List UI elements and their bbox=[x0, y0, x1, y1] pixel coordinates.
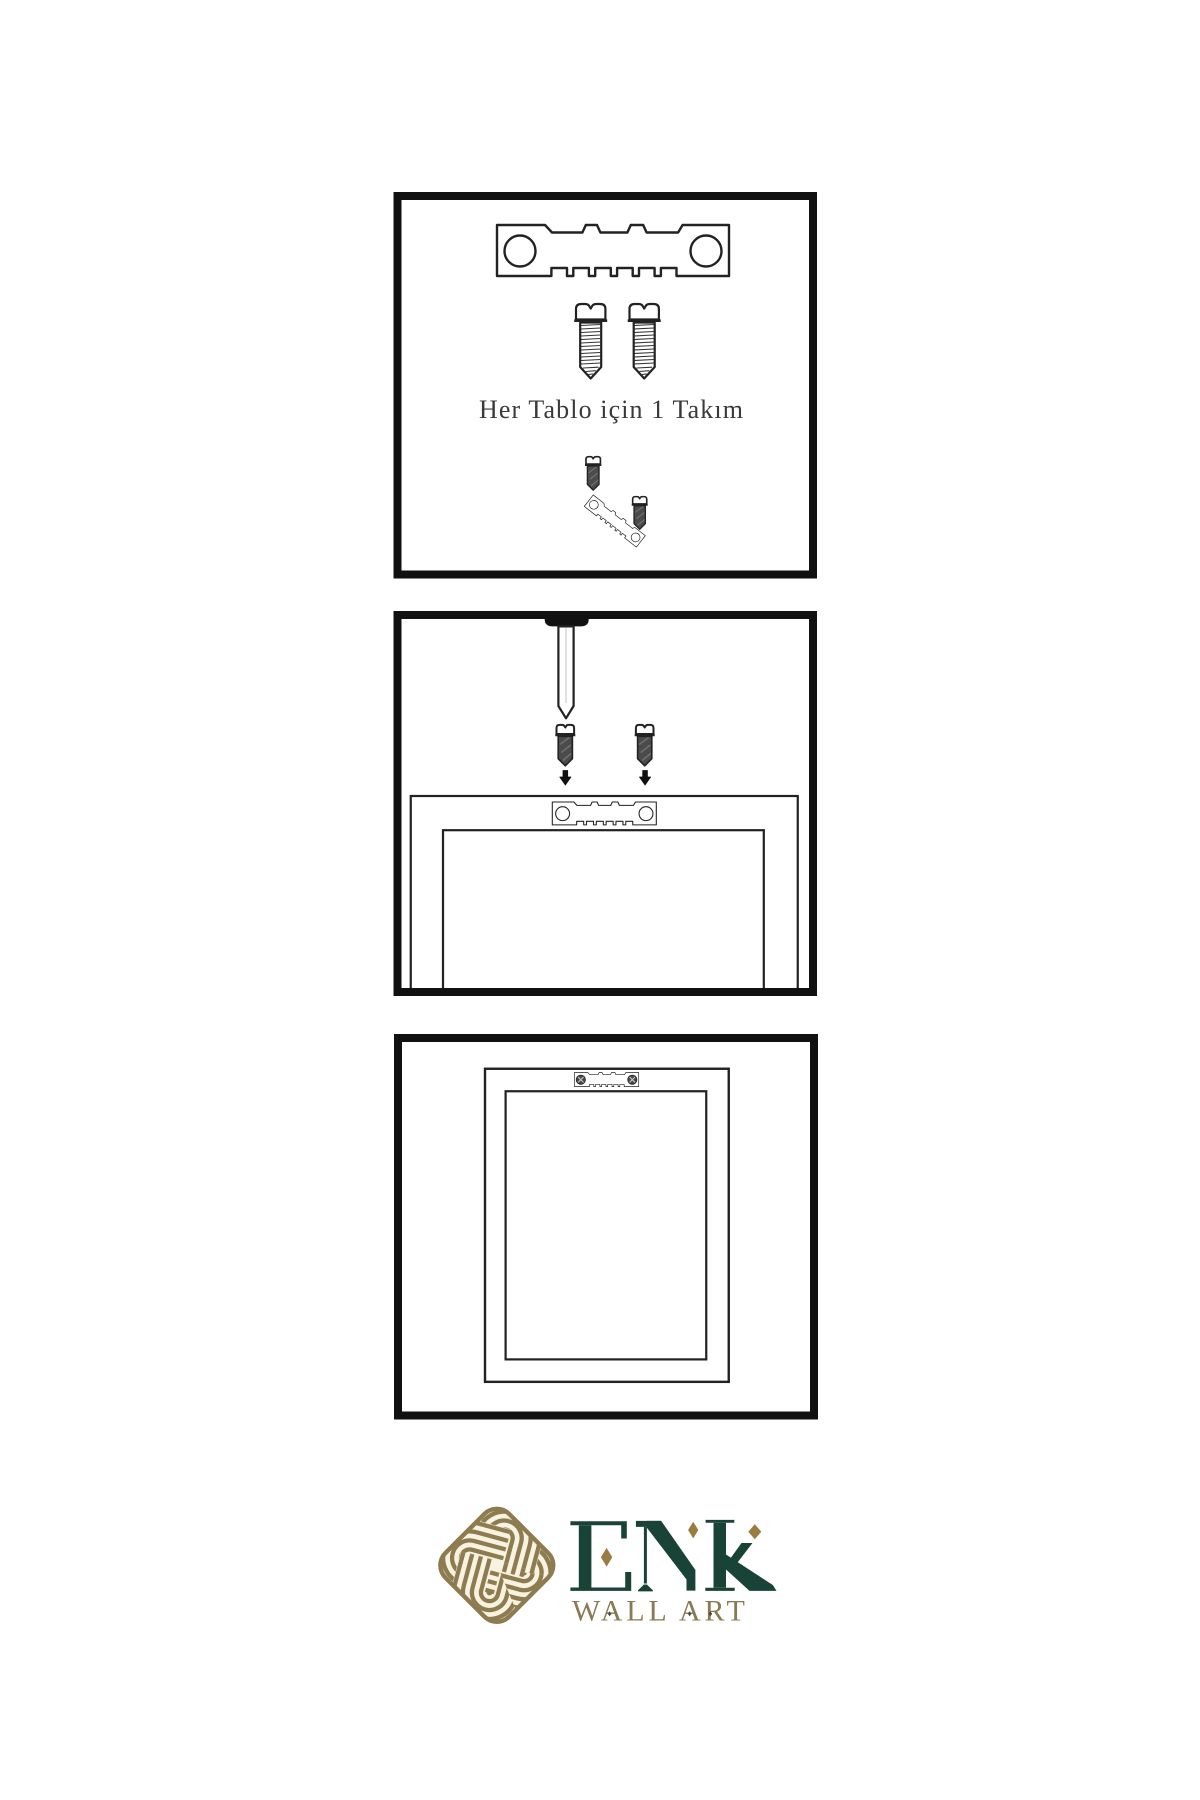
svg-text:Her Tablo için 1 Takım: Her Tablo için 1 Takım bbox=[479, 395, 744, 424]
svg-text:WALL ART: WALL ART bbox=[572, 1594, 749, 1627]
